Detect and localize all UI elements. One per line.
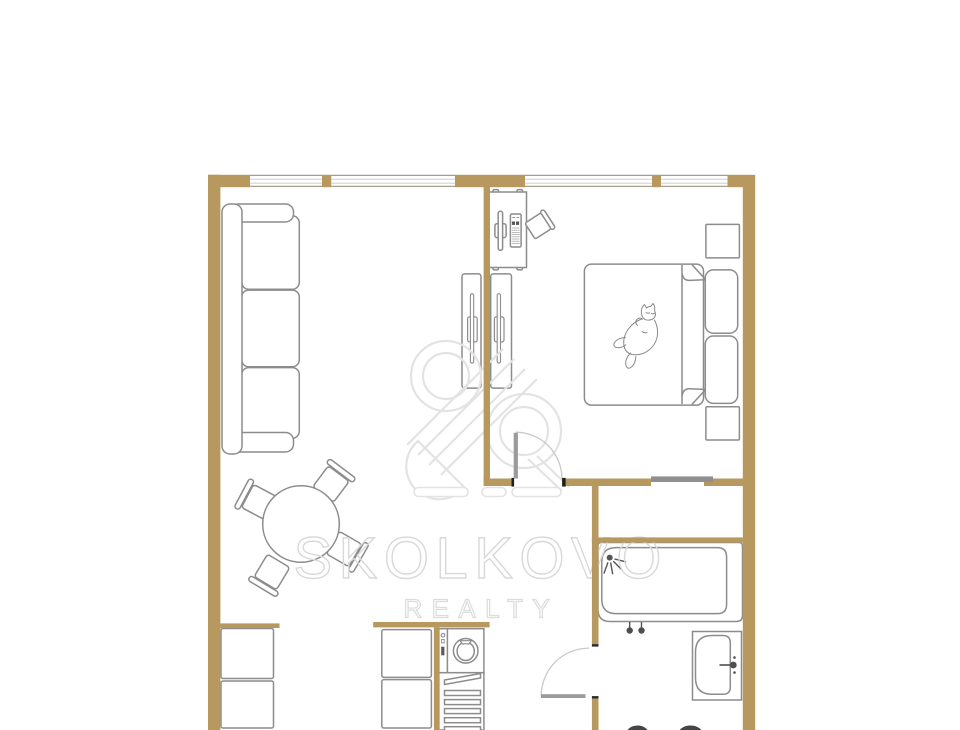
svg-text:SKOLKOVO: SKOLKOVO: [294, 526, 668, 591]
svg-text:REALTY: REALTY: [404, 594, 560, 624]
